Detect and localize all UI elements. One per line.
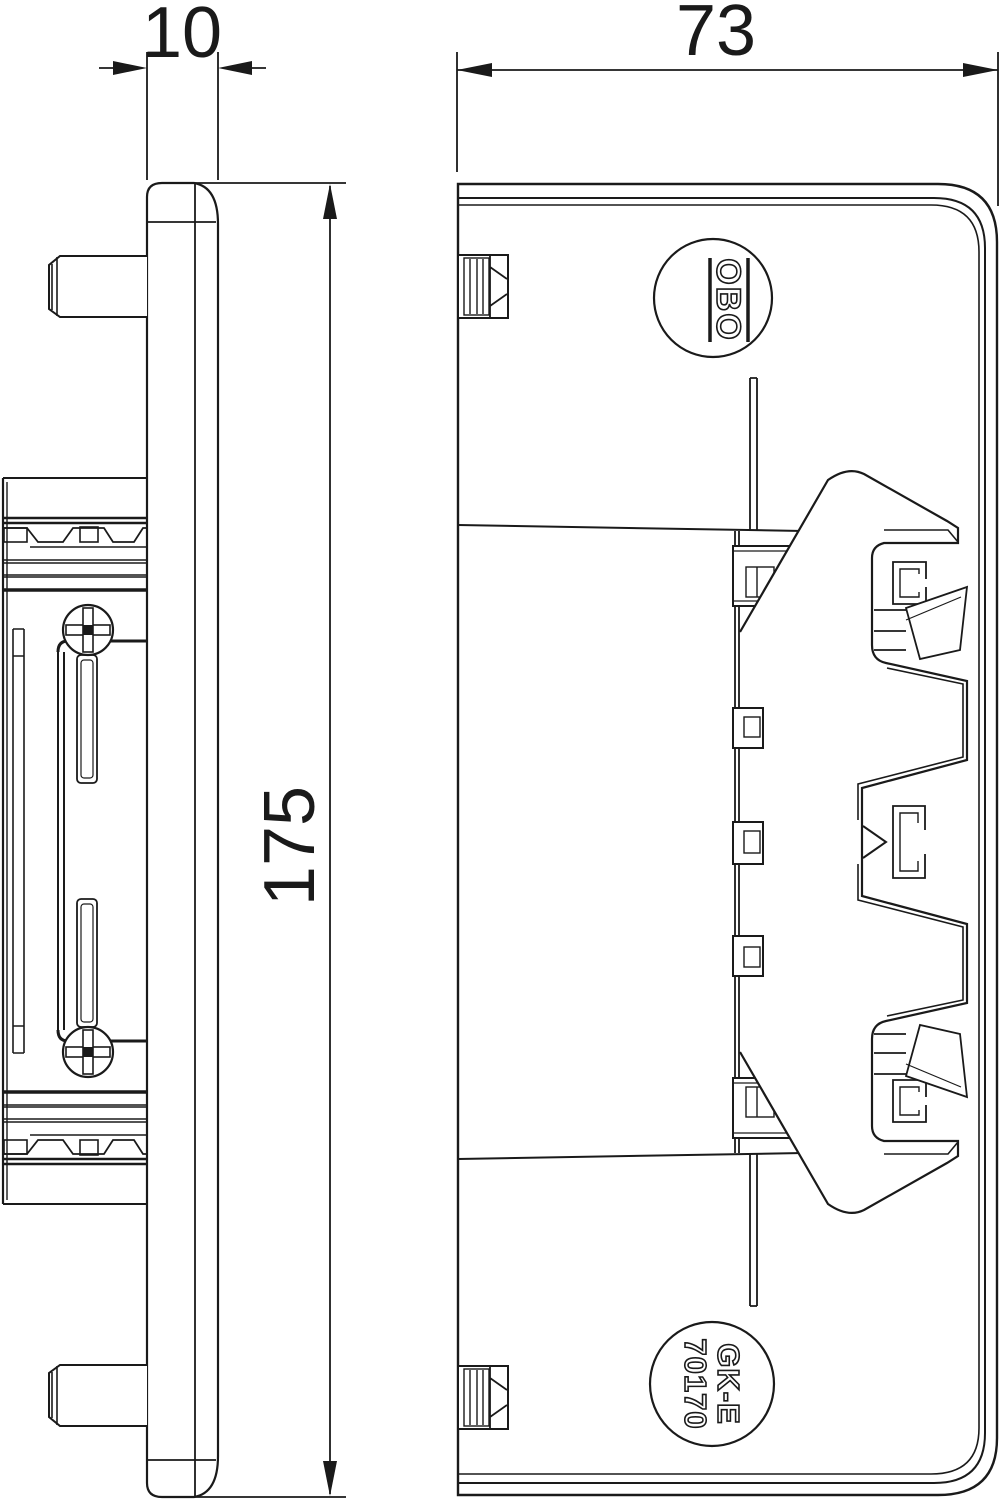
latch-c-bracket: [893, 562, 926, 604]
dimension-height: 175: [194, 183, 346, 1497]
dimension-plate-thickness: 10: [99, 0, 266, 180]
part-code-line2: 70170: [678, 1338, 713, 1429]
front-outline-outer: [458, 184, 997, 1495]
side-plate-outline: [147, 183, 218, 1497]
brand-logo-text: OBO: [709, 258, 747, 341]
technical-drawing-svg: 10 73 175: [0, 0, 1004, 1500]
latch-clip-small: [733, 708, 763, 748]
latch-center-c-clip: [893, 806, 925, 878]
part-code-circle: GK-E 70170: [650, 1322, 774, 1446]
dim-73-label: 73: [676, 0, 756, 71]
panel-slot: [750, 378, 757, 530]
latch-center-arrow: [863, 826, 886, 858]
front-view: OBO GK-E 70170: [458, 184, 997, 1495]
side-rail-block: [3, 478, 64, 1204]
side-mounting-tab: [49, 256, 147, 317]
latch-clip-center: [733, 822, 763, 864]
dimension-width: 73: [457, 0, 998, 206]
dim-175-label: 175: [250, 786, 330, 906]
side-view: [3, 183, 218, 1497]
rail-clip-profile: [4, 528, 147, 542]
dim-10-label: 10: [142, 0, 222, 73]
part-code-line1: GK-E: [711, 1343, 746, 1425]
brand-logo-circle: OBO: [654, 239, 772, 357]
drawing-canvas: 10 73 175: [0, 0, 1004, 1500]
screw-head: [63, 605, 113, 655]
front-outline-inner: [458, 205, 979, 1474]
wall-clip: [458, 255, 508, 318]
side-slot: [77, 655, 97, 783]
front-outline-mid: [458, 198, 985, 1483]
screw-cross-center: [83, 625, 93, 635]
